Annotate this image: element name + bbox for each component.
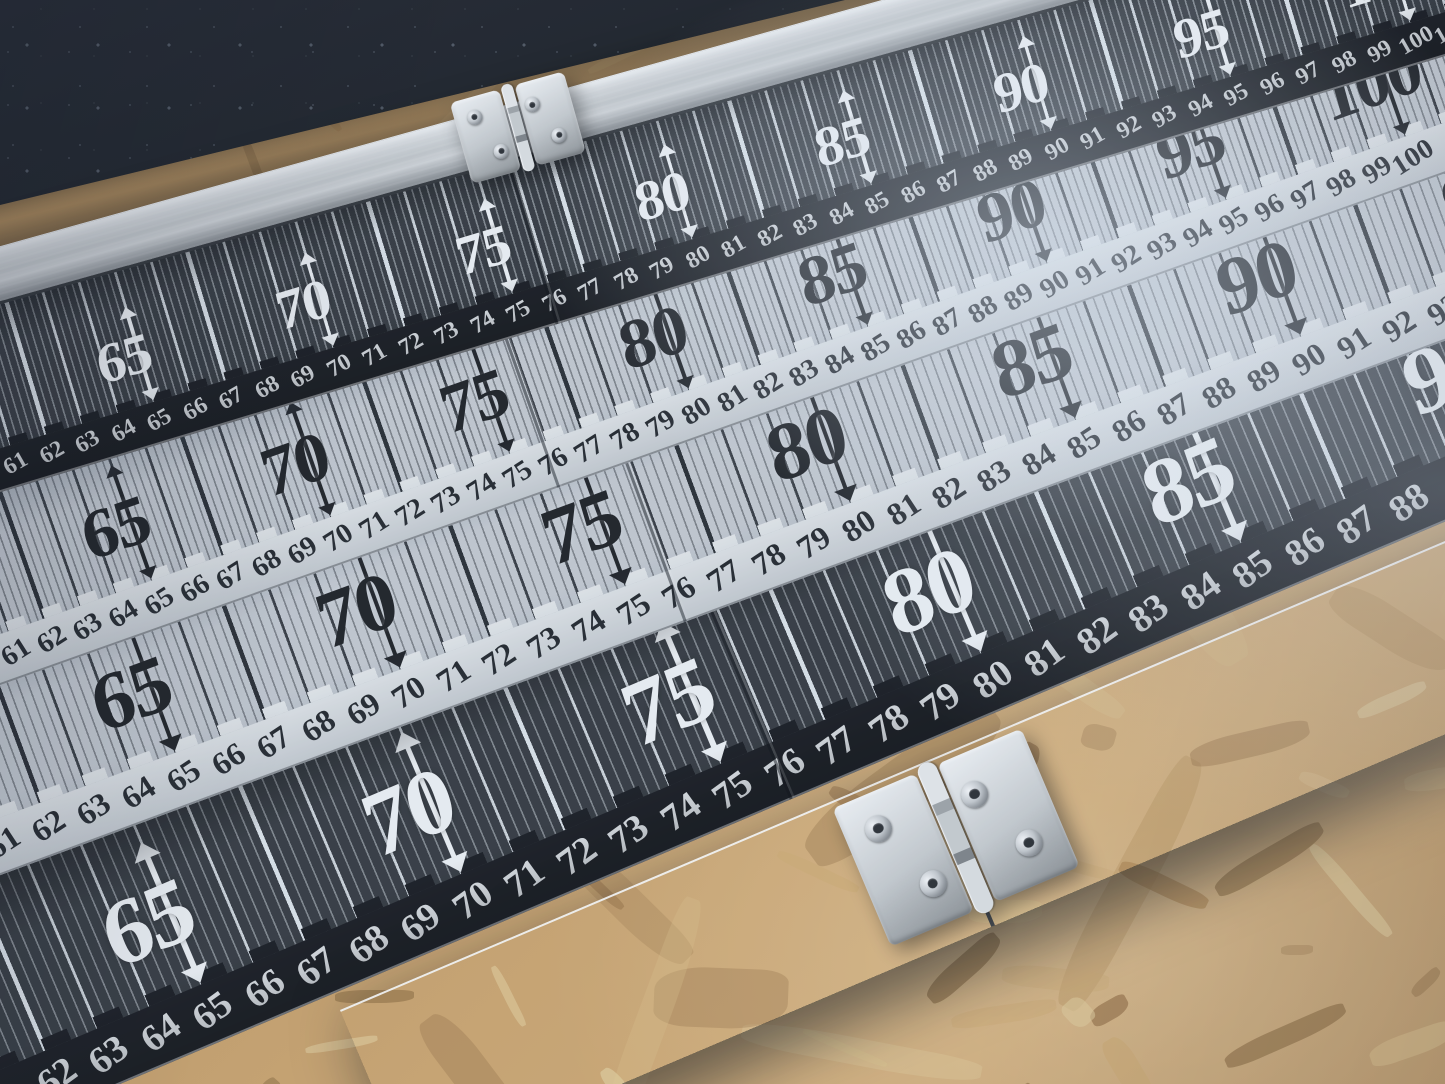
screw-hole	[556, 132, 563, 139]
screw-hole	[871, 821, 885, 835]
wood-chip	[1099, 1033, 1156, 1084]
screw-hole	[1022, 835, 1036, 849]
wood-chip	[1211, 818, 1330, 900]
photo-scene: 6162636465666768697071727374757677787980…	[0, 0, 1445, 1084]
screw-hole	[529, 101, 536, 108]
screw-hole	[926, 876, 940, 890]
wood-chip	[1403, 759, 1445, 794]
wood-chip	[1222, 1001, 1350, 1072]
screw-hole	[471, 113, 478, 120]
wood-chip	[1281, 944, 1313, 954]
wood-chip	[232, 1075, 286, 1084]
wood-chip	[950, 998, 1058, 1031]
screw-hole	[968, 787, 982, 801]
wood-chip	[1366, 1019, 1445, 1071]
wood-chip	[1408, 966, 1443, 1000]
screw-hole	[498, 148, 505, 155]
wood-chip	[1307, 840, 1395, 941]
